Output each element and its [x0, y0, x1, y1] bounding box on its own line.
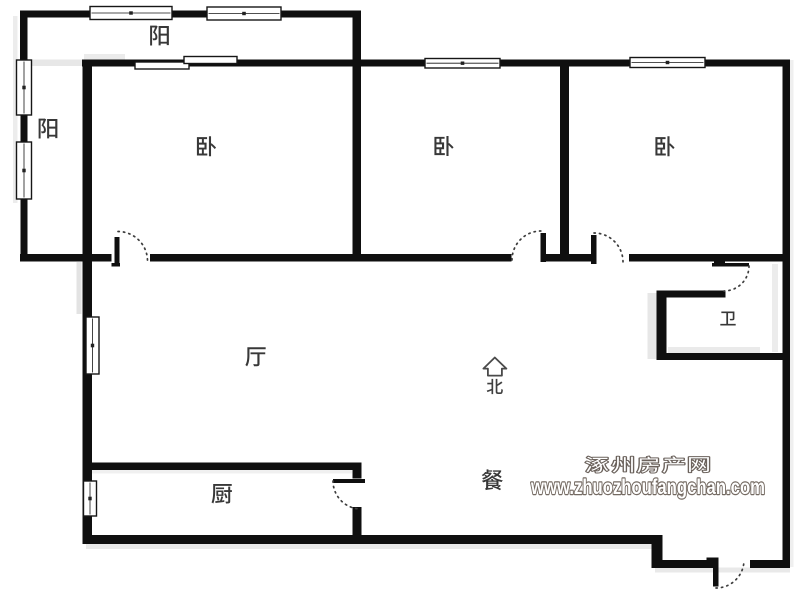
- svg-text:www.zhuozhoufangchan.com: www.zhuozhoufangchan.com: [530, 475, 765, 499]
